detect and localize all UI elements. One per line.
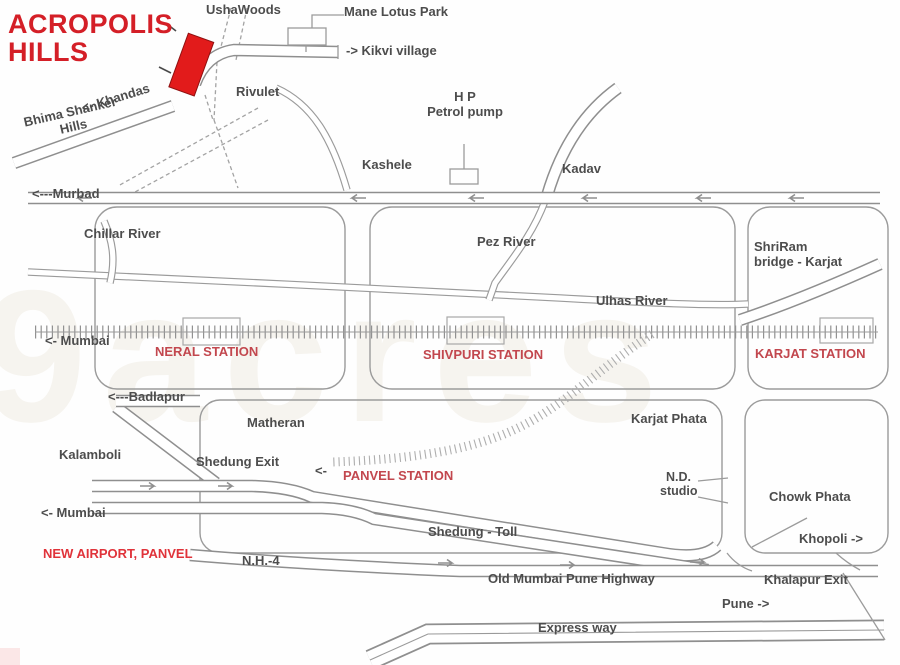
label-pune: Pune -> — [722, 597, 769, 612]
label-murbad: <---Murbad — [32, 187, 100, 202]
label-panvel-station: PANVEL STATION — [343, 469, 453, 484]
label-new-airport-panvel: NEW AIRPORT, PANVEL — [43, 547, 193, 562]
label-rivulet: Rivulet — [236, 85, 279, 100]
label-chillar-river: Chillar River — [84, 227, 161, 242]
label-pez-river: Pez River — [477, 235, 536, 250]
label-express-way: Express way — [538, 621, 617, 636]
label-usha-woods: UshaWoods — [206, 3, 281, 18]
label-kikvi-village: -> Kikvi village — [346, 44, 437, 59]
label-karjat-phata: Karjat Phata — [631, 412, 707, 427]
karjat-station-box — [820, 318, 873, 343]
label-old-mumbai-pune-highway: Old Mumbai Pune Highway — [488, 572, 655, 587]
label-neral-station: NERAL STATION — [155, 345, 258, 360]
label-panvel-arrow: <- — [315, 464, 327, 479]
page-title: ACROPOLIS HILLS — [8, 10, 173, 67]
label-karjat-station: KARJAT STATION — [755, 347, 866, 362]
petrol-pump-box — [450, 169, 478, 184]
label-mane-lotus-park: Mane Lotus Park — [344, 5, 448, 20]
label-mumbai-road: <- Mumbai — [41, 506, 106, 521]
mane-lotus-park-box — [288, 28, 326, 45]
label-kalamboli: Kalamboli — [59, 448, 121, 463]
label-khalapur-exit: Khalapur Exit — [764, 573, 848, 588]
label-nh4: N.H.-4 — [242, 554, 280, 569]
label-chowk-phata: Chowk Phata — [769, 490, 851, 505]
label-nd-studio: N.D. studio — [660, 470, 698, 499]
label-khopoli: Khopoli -> — [799, 532, 863, 547]
location-map: 9acres — [0, 0, 900, 665]
label-shivpuri-station: SHIVPURI STATION — [423, 348, 543, 363]
label-kashele: Kashele — [362, 158, 412, 173]
label-shriram-bridge: ShriRam bridge - Karjat — [754, 240, 842, 270]
label-matheran: Matheran — [247, 416, 305, 431]
label-shedung-toll: Shedung - Toll — [428, 525, 517, 540]
label-ulhas-river: Ulhas River — [596, 294, 668, 309]
label-shedung-exit: Shedung Exit — [196, 455, 279, 470]
label-mumbai-rail: <- Mumbai — [45, 334, 110, 349]
label-kadav: Kadav — [562, 162, 601, 177]
label-hp-petrol-pump: H P Petrol pump — [422, 90, 508, 120]
label-badlapur: <---Badlapur — [108, 390, 185, 405]
